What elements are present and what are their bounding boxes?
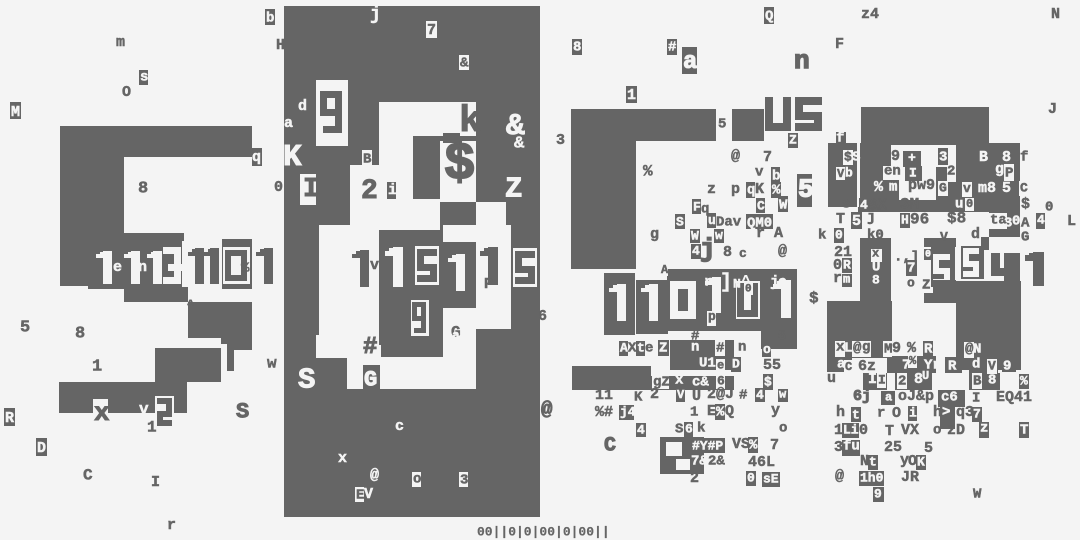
svg-text:$: $	[844, 150, 852, 165]
svg-text:S: S	[236, 400, 249, 425]
svg-text:2: 2	[650, 386, 659, 403]
svg-text:0: 0	[1045, 199, 1053, 215]
svg-text:0: 0	[274, 179, 283, 196]
svg-text:G: G	[778, 276, 787, 293]
svg-text:1: 1	[627, 87, 636, 104]
svg-text:96: 96	[910, 211, 929, 229]
svg-text:%#: %#	[595, 404, 613, 421]
svg-text:$8: $8	[947, 210, 966, 228]
svg-text:C: C	[757, 199, 765, 214]
svg-text:1: 1	[92, 357, 102, 376]
svg-text:I: I	[868, 371, 877, 388]
svg-text:J: J	[1048, 101, 1057, 118]
svg-text:4: 4	[756, 388, 764, 403]
svg-text:O: O	[908, 453, 917, 470]
svg-text:h: h	[836, 404, 845, 421]
svg-text:5: 5	[798, 174, 814, 204]
svg-text:W: W	[973, 486, 982, 502]
svg-text:t: t	[852, 408, 860, 423]
svg-text:O: O	[122, 84, 131, 101]
svg-text:C: C	[604, 434, 616, 457]
svg-text:j: j	[370, 5, 381, 25]
svg-text:%: %	[1020, 374, 1028, 389]
svg-text:8: 8	[75, 324, 85, 343]
svg-text:j: j	[867, 209, 876, 226]
svg-text:5: 5	[852, 213, 861, 230]
svg-text:z: z	[980, 421, 988, 437]
svg-text:2: 2	[690, 470, 699, 487]
svg-text:b: b	[266, 10, 274, 26]
svg-text:N: N	[733, 277, 741, 292]
svg-text:i: i	[388, 182, 397, 199]
svg-text:V: V	[837, 167, 845, 181]
svg-text:oJ&p: oJ&p	[898, 388, 934, 405]
svg-text:D: D	[37, 440, 46, 457]
svg-text:5: 5	[778, 328, 786, 344]
svg-text:Q: Q	[765, 8, 773, 24]
svg-text:W: W	[779, 197, 788, 213]
svg-text:T: T	[836, 211, 845, 228]
svg-text:q3: q3	[956, 404, 974, 421]
svg-text:j: j	[700, 234, 716, 264]
svg-text:0: 0	[966, 197, 973, 211]
svg-text:VS: VS	[732, 436, 750, 453]
svg-text:M: M	[11, 104, 20, 121]
svg-text:n: n	[691, 340, 699, 356]
svg-text:b: b	[845, 166, 853, 181]
svg-text:x: x	[872, 247, 879, 261]
svg-text:y: y	[771, 402, 780, 419]
svg-text:T: T	[885, 423, 894, 440]
svg-text:z: z	[707, 181, 716, 198]
svg-text:0: 0	[835, 228, 843, 243]
svg-text:5: 5	[718, 116, 726, 132]
svg-text:a: a	[452, 328, 460, 343]
svg-text:5: 5	[20, 318, 30, 337]
svg-text:r: r	[833, 270, 842, 287]
svg-text:K: K	[917, 455, 925, 470]
svg-text:R: R	[924, 341, 933, 357]
svg-text:9: 9	[892, 340, 901, 357]
svg-text:U: U	[692, 388, 701, 405]
svg-text:s: s	[140, 70, 148, 86]
svg-text:v: v	[139, 401, 149, 419]
svg-text:x: x	[675, 373, 684, 389]
svg-text:4: 4	[692, 244, 700, 259]
svg-text:1: 1	[834, 422, 843, 439]
svg-text:e: e	[645, 341, 653, 357]
svg-text:I: I	[878, 373, 886, 388]
svg-text:7: 7	[770, 437, 779, 454]
svg-text:8: 8	[573, 39, 581, 55]
svg-text:2&: 2&	[708, 453, 725, 469]
svg-text:V: V	[677, 388, 685, 402]
svg-text:%: %	[749, 437, 758, 453]
svg-text:V: V	[940, 230, 948, 245]
svg-text:G: G	[939, 181, 947, 196]
svg-text:11: 11	[595, 387, 613, 404]
svg-text:&: &	[514, 134, 525, 153]
svg-text:a: a	[885, 391, 892, 405]
svg-text:c: c	[395, 418, 404, 435]
svg-text:K: K	[634, 389, 643, 405]
svg-text:X: X	[628, 340, 637, 356]
svg-text:R: R	[948, 358, 957, 374]
svg-text:6: 6	[538, 308, 547, 325]
svg-text:#: #	[668, 39, 676, 55]
svg-text:#Y#P: #Y#P	[692, 439, 723, 454]
svg-text:Z: Z	[789, 133, 797, 148]
svg-text:E: E	[707, 403, 716, 420]
svg-text:1: 1	[147, 419, 157, 437]
svg-text:Z: Z	[505, 172, 522, 205]
svg-text:Z: Z	[922, 277, 930, 293]
svg-text:S: S	[676, 215, 684, 230]
svg-text:6: 6	[685, 422, 693, 437]
svg-text:2: 2	[947, 163, 955, 179]
svg-text:z4: z4	[861, 6, 879, 23]
svg-text:3: 3	[460, 472, 468, 488]
svg-text:a: a	[683, 49, 697, 76]
svg-text:y: y	[448, 183, 457, 199]
svg-text:en: en	[884, 164, 901, 180]
svg-text:%: %	[772, 182, 781, 198]
svg-text:u: u	[708, 213, 716, 228]
svg-text:#: #	[716, 340, 724, 356]
svg-text:6j: 6j	[853, 388, 871, 405]
svg-text:F: F	[693, 200, 701, 215]
svg-text:]: ]	[720, 271, 732, 294]
svg-text:5: 5	[1002, 180, 1011, 197]
svg-text:8: 8	[138, 179, 148, 198]
svg-text:9: 9	[1003, 358, 1011, 374]
svg-text:n: n	[794, 46, 810, 76]
svg-text:i: i	[909, 406, 917, 421]
svg-text:A: A	[620, 341, 628, 356]
svg-text:+: +	[908, 151, 916, 166]
svg-text:p: p	[708, 309, 716, 324]
svg-text:S: S	[675, 421, 683, 437]
svg-text:fu: fu	[843, 439, 860, 455]
svg-text:g: g	[650, 226, 659, 243]
svg-text:w: w	[267, 355, 277, 373]
svg-text:T: T	[1020, 422, 1028, 438]
svg-text:R: R	[843, 258, 851, 273]
svg-text:@: @	[541, 398, 553, 420]
svg-text:n: n	[138, 259, 147, 276]
svg-text:d: d	[972, 357, 980, 373]
svg-text:7&: 7&	[691, 453, 708, 469]
svg-text:%: %	[643, 163, 653, 181]
svg-text:U: U	[922, 369, 929, 383]
svg-text:g: g	[862, 340, 870, 356]
svg-text:%: %	[716, 404, 725, 420]
svg-text:K: K	[755, 181, 764, 198]
svg-text:4: 4	[637, 423, 645, 438]
svg-text:I: I	[151, 474, 160, 491]
svg-text:B: B	[973, 373, 982, 389]
svg-text:N: N	[860, 453, 869, 470]
svg-text:5: 5	[924, 440, 933, 457]
svg-text:Li: Li	[843, 423, 859, 438]
svg-text:t: t	[637, 341, 645, 356]
svg-text:S: S	[852, 149, 860, 165]
svg-text:C: C	[1020, 181, 1028, 196]
svg-text:w: w	[715, 228, 723, 243]
svg-text:f: f	[836, 131, 844, 147]
svg-text:D: D	[732, 357, 740, 372]
svg-text:w: w	[779, 388, 787, 402]
svg-text:k0: k0	[867, 227, 884, 243]
svg-text:B: B	[363, 151, 372, 167]
svg-text:e: e	[113, 259, 122, 276]
svg-text:d: d	[298, 98, 307, 115]
svg-text:P: P	[484, 276, 493, 293]
svg-text:m: m	[116, 34, 125, 51]
svg-text:c6: c6	[941, 389, 958, 405]
svg-text:8: 8	[988, 372, 996, 388]
svg-text:2@J: 2@J	[707, 386, 734, 403]
svg-text:&: &	[460, 55, 469, 71]
svg-text:#: #	[363, 334, 377, 361]
svg-text:^: ^	[187, 298, 194, 312]
svg-text:9: 9	[874, 487, 882, 502]
svg-text:8: 8	[872, 273, 880, 288]
svg-text:JR: JR	[901, 469, 919, 486]
svg-text:2: 2	[898, 373, 906, 389]
svg-text:0: 0	[747, 471, 755, 486]
svg-text:7: 7	[427, 22, 436, 39]
svg-text:7: 7	[763, 149, 772, 166]
svg-text:q: q	[252, 149, 261, 166]
svg-text:x: x	[94, 398, 110, 428]
svg-text:g: g	[995, 161, 1004, 178]
svg-text:zD: zD	[947, 422, 965, 439]
svg-text:9: 9	[891, 148, 900, 165]
svg-text:o: o	[413, 472, 421, 488]
svg-text:4: 4	[1037, 213, 1045, 228]
svg-text:e: e	[717, 359, 724, 373]
svg-text:1: 1	[690, 404, 698, 420]
svg-text:p: p	[731, 181, 740, 198]
svg-text:n: n	[738, 340, 746, 356]
svg-text:H: H	[276, 37, 285, 54]
svg-text:00||0|0|00|0|00||: 00||0|0|00|0|00||	[477, 525, 610, 540]
svg-text:a: a	[284, 115, 293, 132]
svg-text:t: t	[869, 455, 877, 470]
svg-text:R: R	[5, 410, 14, 427]
svg-text:v: v	[755, 165, 764, 181]
svg-text:7: 7	[907, 260, 915, 276]
svg-text:m: m	[889, 180, 897, 196]
svg-text:N: N	[973, 341, 981, 357]
svg-text:v: v	[370, 257, 379, 274]
svg-text:P: P	[1005, 165, 1013, 181]
svg-text:C: C	[83, 467, 93, 485]
svg-text:3: 3	[939, 149, 947, 165]
svg-text:o: o	[763, 342, 771, 357]
svg-text:c: c	[739, 246, 747, 261]
svg-text:f: f	[1020, 149, 1028, 165]
svg-text:u: u	[827, 370, 836, 387]
svg-text:j4: j4	[620, 405, 636, 420]
svg-text:S: S	[298, 363, 315, 396]
svg-text:1h0: 1h0	[860, 471, 884, 486]
svg-text:m8: m8	[978, 180, 996, 197]
svg-text:F: F	[835, 36, 844, 53]
svg-text:pw9: pw9	[908, 177, 935, 194]
svg-text:G: G	[364, 368, 377, 393]
svg-text:L: L	[1067, 213, 1076, 230]
svg-text:W: W	[691, 229, 699, 244]
svg-text:K: K	[283, 140, 302, 175]
svg-text:VX: VX	[901, 422, 919, 439]
svg-text:@: @	[835, 468, 844, 485]
svg-text:G: G	[1021, 229, 1029, 245]
svg-text:%: %	[241, 260, 250, 276]
svg-text:0: 0	[925, 250, 931, 261]
svg-text:I: I	[303, 175, 319, 205]
svg-text:o: o	[907, 276, 915, 291]
svg-text:d: d	[971, 226, 980, 243]
svg-text:@: @	[370, 467, 379, 484]
svg-text:>: >	[942, 404, 950, 420]
svg-text:$: $	[1021, 196, 1030, 213]
svg-text:r A: r A	[756, 225, 783, 242]
svg-text:k: k	[697, 420, 705, 436]
svg-text:%: %	[909, 354, 917, 368]
svg-text:sE: sE	[763, 472, 779, 487]
svg-text:x: x	[338, 450, 347, 467]
svg-text:h: h	[933, 404, 942, 421]
svg-text:Z: Z	[659, 340, 667, 356]
svg-text:46L: 46L	[748, 454, 775, 471]
svg-text:$: $	[764, 375, 772, 390]
svg-text:C: C	[845, 360, 852, 374]
svg-text:N: N	[1051, 6, 1060, 23]
svg-text:0: 0	[859, 422, 868, 439]
svg-text:H: H	[901, 213, 909, 228]
svg-text:8: 8	[723, 244, 732, 261]
svg-text:v: v	[963, 181, 971, 196]
svg-text:@: @	[853, 340, 862, 356]
svg-text:0: 0	[1012, 213, 1020, 229]
svg-text:U1: U1	[699, 355, 716, 371]
svg-text:%: %	[874, 179, 884, 196]
svg-text:@: @	[778, 243, 787, 260]
svg-text:r: r	[877, 406, 885, 422]
svg-text:V: V	[364, 486, 373, 503]
svg-text:7: 7	[973, 407, 981, 422]
svg-text:k: k	[818, 227, 826, 243]
svg-text:m: m	[843, 273, 850, 287]
svg-text:r: r	[704, 275, 712, 291]
svg-text:#: #	[739, 387, 747, 403]
svg-text:o: o	[933, 423, 941, 439]
svg-text:A: A	[661, 263, 669, 277]
svg-text:$: $	[809, 290, 819, 308]
svg-text:@: @	[731, 148, 740, 165]
svg-text:3: 3	[556, 132, 565, 149]
svg-text:B: B	[979, 149, 988, 166]
svg-text:Q: Q	[725, 403, 734, 420]
svg-text:L: L	[844, 340, 852, 356]
svg-text:EQ41: EQ41	[996, 389, 1032, 406]
svg-text:O: O	[892, 405, 901, 422]
svg-text:2: 2	[361, 176, 378, 207]
svg-text:0: 0	[745, 283, 752, 295]
svg-text:o: o	[779, 421, 787, 437]
svg-text:r: r	[167, 517, 176, 534]
svg-text:55: 55	[763, 357, 781, 374]
svg-text:3: 3	[834, 439, 843, 456]
